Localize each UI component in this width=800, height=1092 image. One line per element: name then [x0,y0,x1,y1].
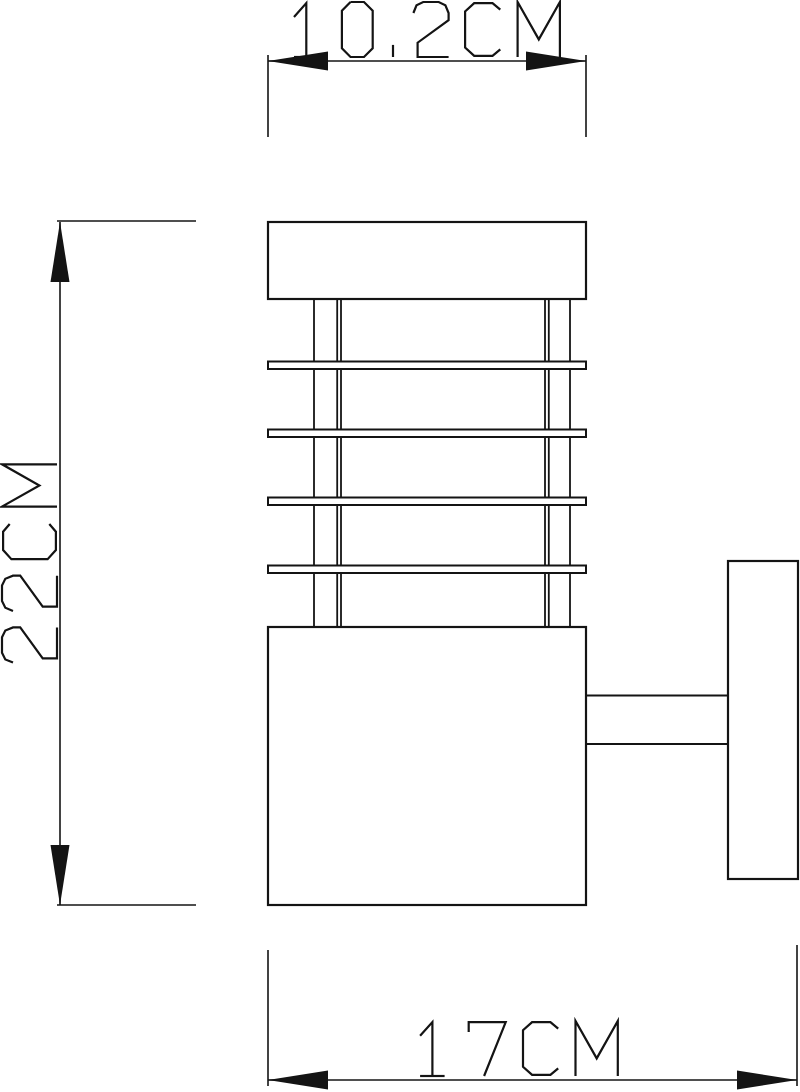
dimension-label-top [294,2,560,57]
cad-glyph-stroke [576,1021,618,1076]
arrowhead-left [268,1071,328,1090]
mounting-arm [586,696,728,745]
cad-glyph-stroke [469,1022,506,1076]
arrowhead-down [51,845,70,905]
arrowhead-left [268,52,328,71]
arrowhead-up [51,222,70,282]
lamp-body [268,627,586,905]
cad-glyph-stroke [420,1022,432,1076]
drawing-canvas [0,0,800,1092]
cad-glyph-stroke [3,524,56,559]
arrowhead-right [526,52,586,71]
cad-glyph-stroke [2,576,57,611]
grill-rings [268,362,586,574]
cad-glyph-stroke [523,1022,558,1075]
arrowhead-right [737,1071,797,1090]
cad-glyph-stroke [2,627,57,662]
cad-glyph-stroke [413,2,448,57]
grill-rods [314,299,570,627]
dimension-label-left [2,464,57,662]
dimension-left-height [2,221,196,905]
dimension-top-width [268,2,586,137]
technical-drawing [0,0,800,1092]
lamp-fixture [268,222,798,905]
cad-glyph-stroke [342,2,373,57]
dimension-label-bottom [420,1021,618,1076]
cad-glyph-stroke [2,464,57,506]
cad-glyph-stroke [465,3,500,56]
top-cap [268,222,586,299]
cad-glyph-stroke [294,3,306,57]
cad-glyph-stroke [518,2,560,57]
wall-plate [728,561,798,879]
dimension-bottom-depth [268,945,797,1090]
